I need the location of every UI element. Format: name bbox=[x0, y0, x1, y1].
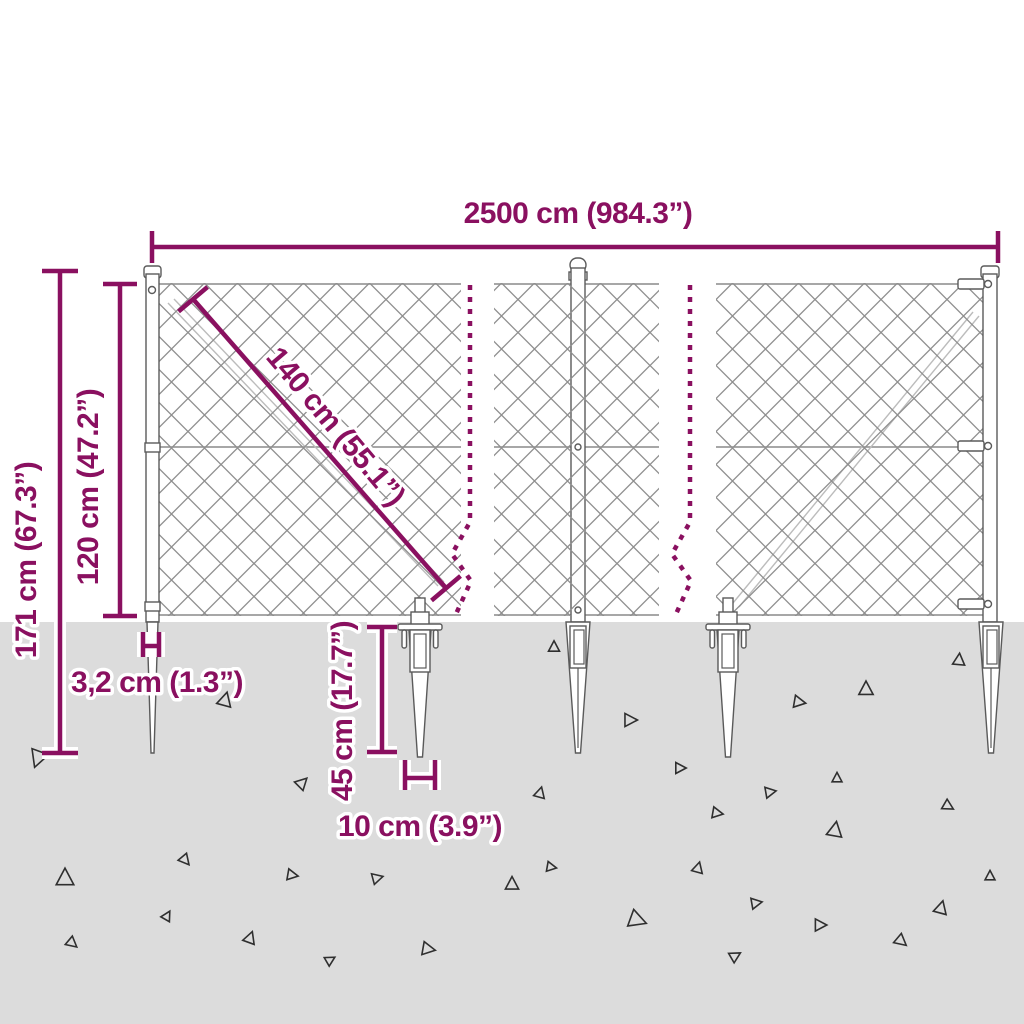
break-line-right bbox=[672, 285, 691, 614]
mesh-panel-right bbox=[716, 283, 988, 616]
left-post bbox=[144, 266, 161, 622]
mesh-panel-middle bbox=[494, 283, 659, 616]
label-anchor-width: 10 cm (3.9”) bbox=[338, 810, 502, 843]
fence-dimension-diagram: 2500 cm (984.3”) 171 cm (67.3”) 120 cm (… bbox=[0, 0, 1024, 1024]
label-anchor-length: 45 cm (17.7”) bbox=[326, 621, 359, 801]
label-post-diameter: 3,2 cm (1.3”) bbox=[71, 666, 243, 699]
label-total-width: 2500 cm (984.3”) bbox=[464, 197, 693, 230]
mesh-panel-left bbox=[155, 283, 461, 616]
dim-line-fence-height bbox=[103, 284, 137, 616]
label-fence-height: 120 cm (47.2”) bbox=[72, 389, 105, 585]
diagram-svg: 2500 cm (984.3”) 171 cm (67.3”) 120 cm (… bbox=[0, 0, 1024, 1024]
label-total-height: 171 cm (67.3”) bbox=[10, 462, 43, 658]
